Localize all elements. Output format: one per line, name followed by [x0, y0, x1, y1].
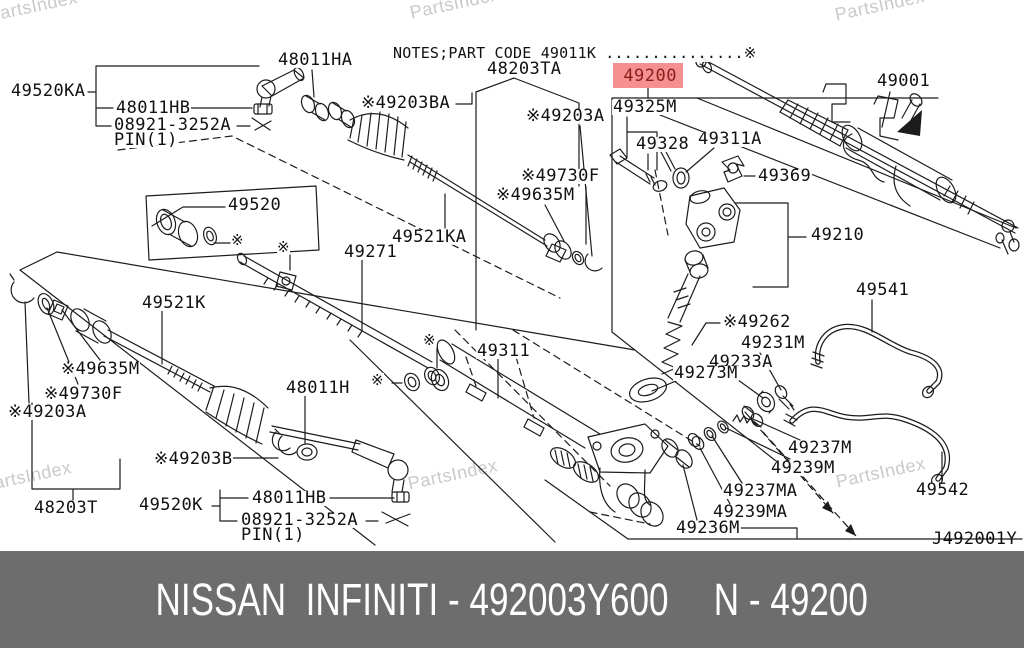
- footer-brand-and-part: NISSAN INFINITI - 492003Y600: [156, 574, 669, 626]
- part-label-49325M[interactable]: 49325M: [612, 100, 678, 115]
- highlighted-part-code-49200[interactable]: 49200: [613, 63, 683, 88]
- drawing-code: J492001Y: [932, 529, 1017, 549]
- part-label-49520KA[interactable]: 49520KA: [10, 84, 86, 99]
- part-label-48011HA[interactable]: 48011HA: [277, 53, 353, 68]
- part-label-49520K[interactable]: 49520K: [138, 498, 204, 513]
- arrowheads: [822, 501, 856, 536]
- part-rack-housing: [434, 337, 668, 530]
- part-label-PIN1-bottom[interactable]: PIN(1): [240, 528, 306, 543]
- part-label-49001[interactable]: 49001: [876, 74, 931, 89]
- part-label-49273M[interactable]: 49273M: [673, 366, 739, 381]
- part-label-49203BA[interactable]: ※49203BA: [360, 96, 451, 111]
- part-label-49237M[interactable]: 49237M: [787, 441, 853, 456]
- part-label-49237MA[interactable]: 49237MA: [722, 484, 798, 499]
- part-label-48203T[interactable]: 48203T: [33, 501, 99, 516]
- footer-text: NISSAN INFINITI - 492003Y600 N - 49200: [156, 574, 868, 626]
- part-tie-rod-end-top: [252, 66, 357, 130]
- part-label-48203TA[interactable]: 48203TA: [486, 62, 562, 77]
- part-label-49520[interactable]: 49520: [227, 198, 282, 213]
- part-label-49203B[interactable]: ※49203B: [153, 452, 233, 467]
- part-label-49203A-top[interactable]: ※49203A: [525, 109, 605, 124]
- reference-mark: ※: [277, 240, 290, 254]
- notes-part-code-line: NOTES;PART CODE 49011K ...............※: [393, 44, 757, 62]
- part-label-49271[interactable]: 49271: [343, 245, 398, 260]
- reference-mark: ※: [371, 373, 384, 387]
- part-label-49311A[interactable]: 49311A: [697, 132, 763, 147]
- reference-mark: ※: [423, 333, 436, 347]
- part-label-48011HB-bottom[interactable]: 48011HB: [251, 491, 327, 506]
- reference-mark: ※: [231, 233, 244, 247]
- part-label-PIN1-top[interactable]: PIN(1): [113, 133, 179, 148]
- part-label-49541[interactable]: 49541: [855, 283, 910, 298]
- part-label-49239M[interactable]: 49239M: [770, 461, 836, 476]
- part-label-49236M[interactable]: 49236M: [675, 521, 741, 536]
- part-label-49635M-left[interactable]: ※49635M: [60, 362, 140, 377]
- part-label-49369[interactable]: 49369: [757, 169, 812, 184]
- footer-ref-code: N - 49200: [714, 574, 868, 626]
- part-label-49231M[interactable]: 49231M: [740, 336, 806, 351]
- part-label-49262[interactable]: ※49262: [722, 315, 792, 330]
- part-label-49730F-left[interactable]: ※49730F: [43, 387, 123, 402]
- part-label-49210[interactable]: 49210: [810, 228, 865, 243]
- part-label-49635M-top[interactable]: ※49635M: [495, 188, 575, 203]
- part-label-49328[interactable]: 49328: [635, 137, 690, 152]
- part-label-49311[interactable]: 49311: [476, 344, 531, 359]
- parts-diagram-page: NOTES;PART CODE 49011K ...............※ …: [0, 0, 1024, 648]
- part-pipe-49541: [811, 326, 940, 399]
- part-label-49521K[interactable]: 49521K: [141, 296, 207, 311]
- part-label-49542[interactable]: 49542: [915, 483, 970, 498]
- part-label-48011HB-top[interactable]: 48011HB: [115, 101, 191, 116]
- part-label-49730F-top[interactable]: ※49730F: [520, 169, 600, 184]
- part-label-49521KA[interactable]: 49521KA: [391, 230, 467, 245]
- part-label-49203A-left[interactable]: ※49203A: [7, 405, 87, 420]
- part-label-48011H[interactable]: 48011H: [285, 381, 351, 396]
- footer-bar: NISSAN INFINITI - 492003Y600 N - 49200: [0, 551, 1024, 648]
